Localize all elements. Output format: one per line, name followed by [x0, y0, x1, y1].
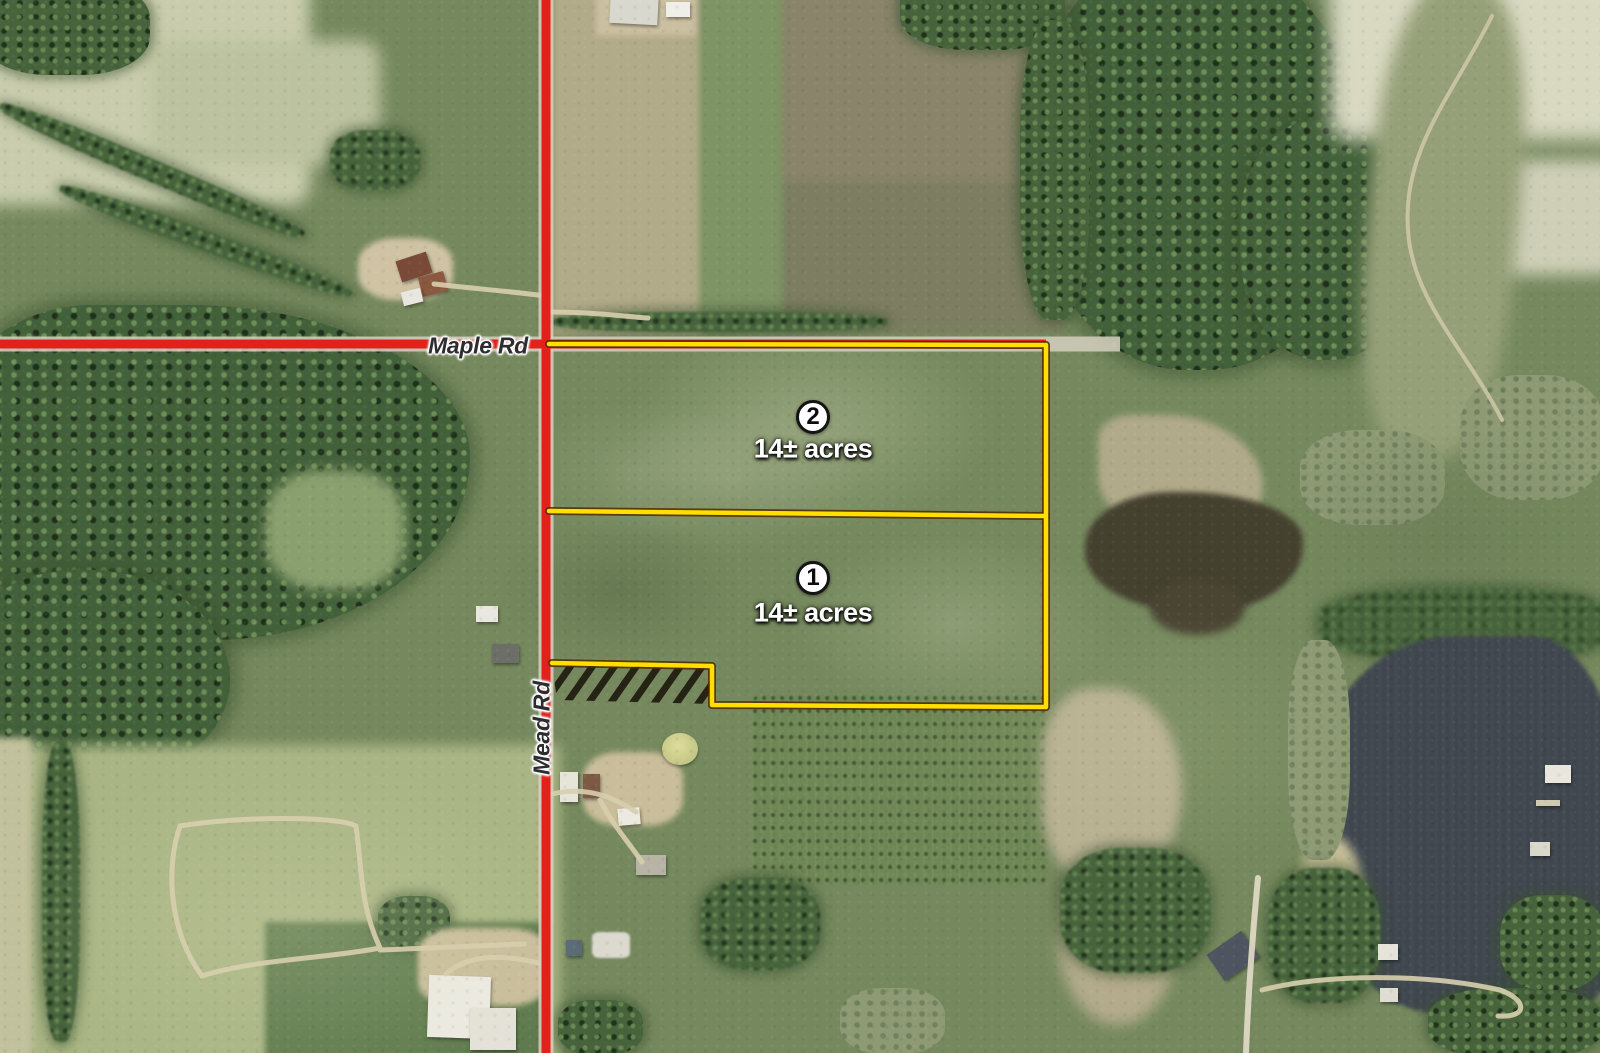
- dirt-track-loop: [172, 819, 380, 977]
- farm-driveway: [434, 284, 546, 296]
- parcel-1-acreage: 14± acres: [754, 598, 872, 629]
- parcel-boundary-shadow: [549, 344, 1046, 707]
- maple-rd-label: Maple Rd: [428, 333, 528, 360]
- homestead-drive: [552, 791, 636, 812]
- drive-loop: [1262, 978, 1521, 1017]
- field-drive: [552, 312, 648, 318]
- ravine-trail: [1408, 16, 1502, 420]
- long-driveway: [1246, 878, 1258, 1053]
- farm-drive: [446, 957, 546, 974]
- map-linework: [0, 0, 1600, 1053]
- parcel-boundary: [549, 344, 1046, 707]
- mead-rd-label: Mead Rd: [529, 681, 556, 775]
- parcel-1-badge: 1: [796, 561, 830, 595]
- aerial-parcel-map: Maple Rd Mead Rd 2 14± acres 1 14± acres: [0, 0, 1600, 1053]
- parcel-2-acreage: 14± acres: [754, 434, 872, 465]
- parcel-2-badge: 2: [796, 400, 830, 434]
- dirt-lane: [380, 944, 524, 950]
